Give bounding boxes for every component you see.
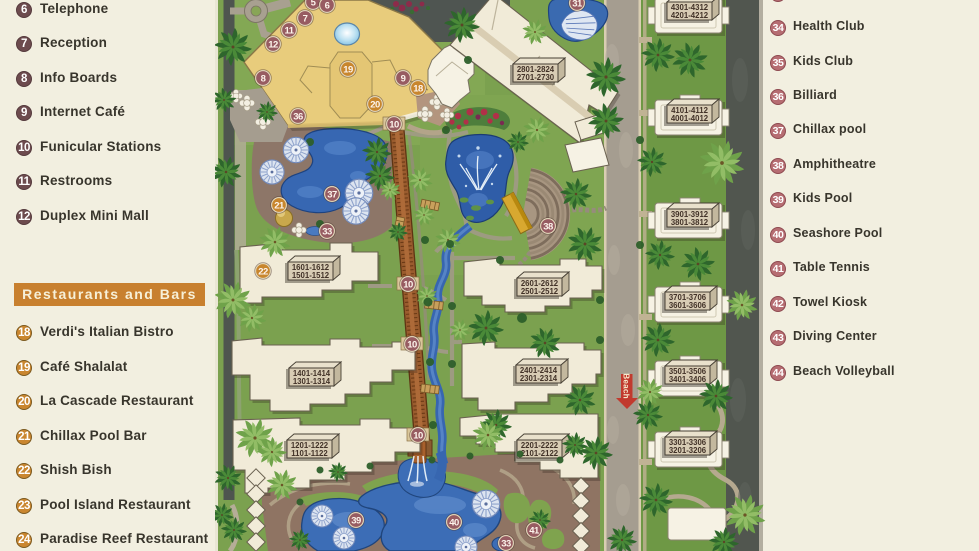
svg-text:1101-1122: 1101-1122: [291, 449, 328, 458]
svg-text:3401-3406: 3401-3406: [669, 375, 707, 384]
svg-text:41: 41: [529, 525, 540, 536]
svg-text:31: 31: [572, 0, 583, 9]
svg-text:37: 37: [327, 189, 337, 200]
svg-text:11: 11: [284, 25, 294, 36]
svg-text:20: 20: [370, 99, 380, 110]
svg-text:3201-3206: 3201-3206: [669, 446, 707, 455]
svg-text:7: 7: [303, 13, 308, 24]
svg-text:4201-4212: 4201-4212: [671, 11, 709, 20]
svg-text:12: 12: [268, 39, 278, 50]
svg-text:10: 10: [413, 430, 423, 441]
svg-text:9: 9: [401, 73, 406, 84]
svg-text:4001-4012: 4001-4012: [671, 114, 709, 123]
svg-text:10: 10: [403, 279, 413, 290]
svg-text:6: 6: [325, 0, 330, 11]
svg-text:18: 18: [413, 83, 423, 94]
svg-text:36: 36: [293, 111, 303, 122]
svg-text:40: 40: [449, 517, 459, 528]
svg-text:Beach: Beach: [622, 373, 631, 399]
svg-text:38: 38: [543, 221, 553, 232]
svg-text:1501-1512: 1501-1512: [292, 271, 330, 280]
svg-text:2301-2314: 2301-2314: [520, 374, 558, 383]
svg-text:10: 10: [407, 339, 417, 350]
svg-text:2501-2512: 2501-2512: [521, 287, 559, 296]
svg-text:3601-3606: 3601-3606: [669, 301, 707, 310]
svg-text:3801-3812: 3801-3812: [671, 218, 709, 227]
svg-text:39: 39: [351, 515, 361, 526]
svg-text:22: 22: [258, 266, 268, 277]
svg-text:21: 21: [274, 200, 285, 211]
svg-text:1301-1314: 1301-1314: [293, 377, 331, 386]
svg-text:10: 10: [389, 119, 399, 130]
svg-text:2701-2730: 2701-2730: [517, 73, 555, 82]
svg-text:2101-2122: 2101-2122: [521, 449, 559, 458]
svg-text:33: 33: [322, 226, 332, 237]
svg-text:33: 33: [501, 538, 511, 549]
svg-text:8: 8: [261, 73, 266, 84]
svg-text:19: 19: [343, 64, 353, 75]
